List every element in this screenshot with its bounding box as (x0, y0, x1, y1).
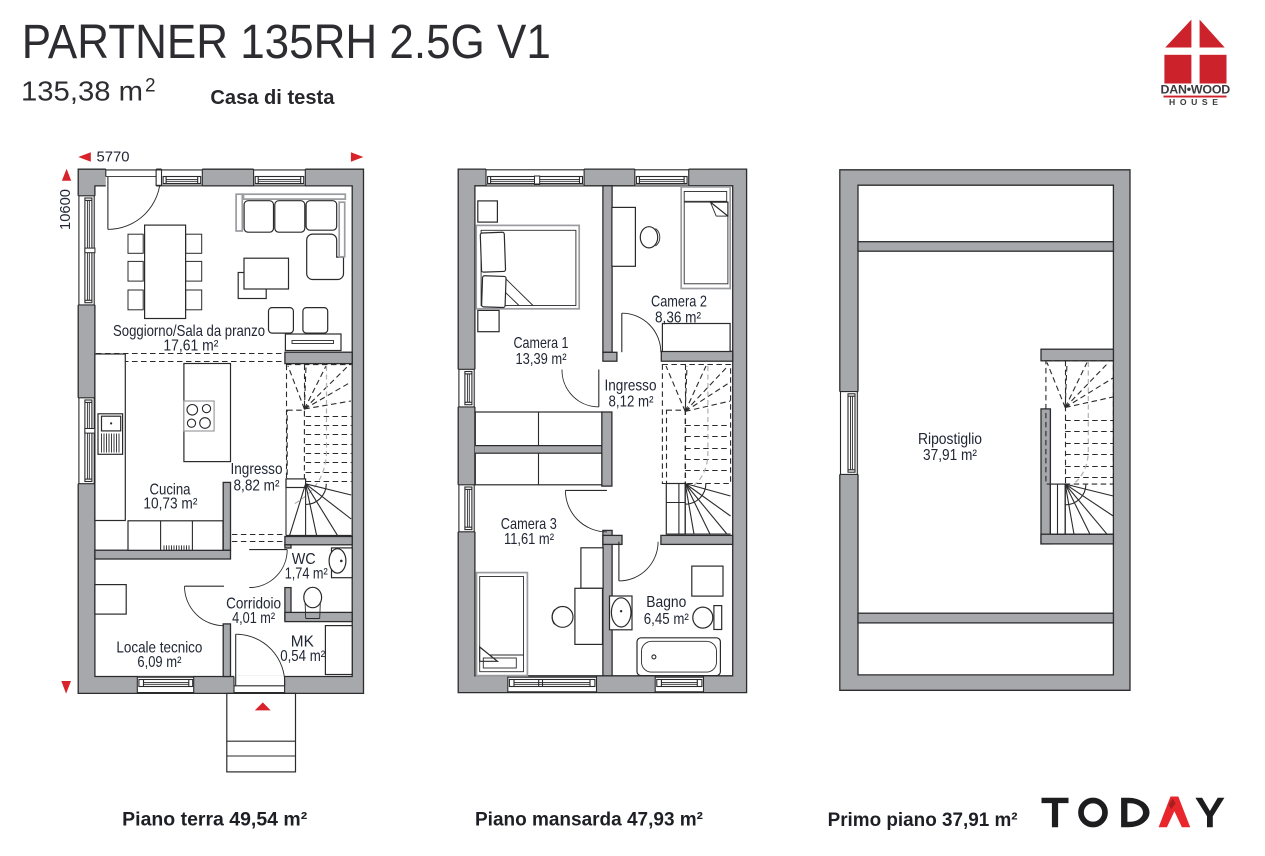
svg-text:Camera 1: Camera 1 (514, 335, 569, 352)
svg-text:10,73 m²: 10,73 m² (143, 495, 197, 512)
svg-text:Ingresso: Ingresso (605, 378, 657, 395)
svg-text:Casa di testa: Casa di testa (210, 87, 335, 109)
svg-text:PARTNER 135RH 2.5G V1: PARTNER 135RH 2.5G V1 (22, 16, 551, 69)
svg-text:DAN•WOOD: DAN•WOOD (1161, 83, 1231, 97)
svg-text:Piano terra 49,54 m²: Piano terra 49,54 m² (122, 810, 307, 831)
svg-text:17,61 m²: 17,61 m² (163, 338, 218, 355)
svg-text:8,82 m²: 8,82 m² (234, 478, 280, 495)
svg-text:37,91 m²: 37,91 m² (923, 447, 977, 464)
svg-text:Camera 2: Camera 2 (651, 294, 707, 311)
svg-text:Bagno: Bagno (646, 594, 686, 611)
svg-text:6,09 m²: 6,09 m² (137, 654, 181, 671)
svg-text:11,61 m²: 11,61 m² (504, 531, 554, 548)
svg-text:Ripostiglio: Ripostiglio (918, 431, 982, 448)
svg-text:10600: 10600 (58, 189, 74, 230)
svg-text:HOUSE: HOUSE (1169, 97, 1223, 107)
svg-text:0,54 m²: 0,54 m² (280, 648, 325, 665)
svg-text:8,36 m²: 8,36 m² (655, 310, 701, 327)
svg-text:13,39 m²: 13,39 m² (516, 351, 567, 368)
svg-text:2: 2 (145, 76, 156, 97)
svg-text:6,45 m²: 6,45 m² (644, 611, 689, 628)
svg-text:8,12 m²: 8,12 m² (609, 394, 654, 411)
svg-text:5770: 5770 (97, 150, 130, 166)
svg-text:Primo piano 37,91 m²: Primo piano 37,91 m² (828, 810, 1018, 831)
svg-text:4,01 m²: 4,01 m² (232, 610, 275, 627)
svg-text:135,38 m: 135,38 m (21, 76, 143, 107)
svg-text:Ingresso: Ingresso (231, 461, 283, 478)
svg-text:1,74 m²: 1,74 m² (285, 565, 328, 582)
svg-text:Piano mansarda 47,93 m²: Piano mansarda 47,93 m² (475, 810, 703, 831)
